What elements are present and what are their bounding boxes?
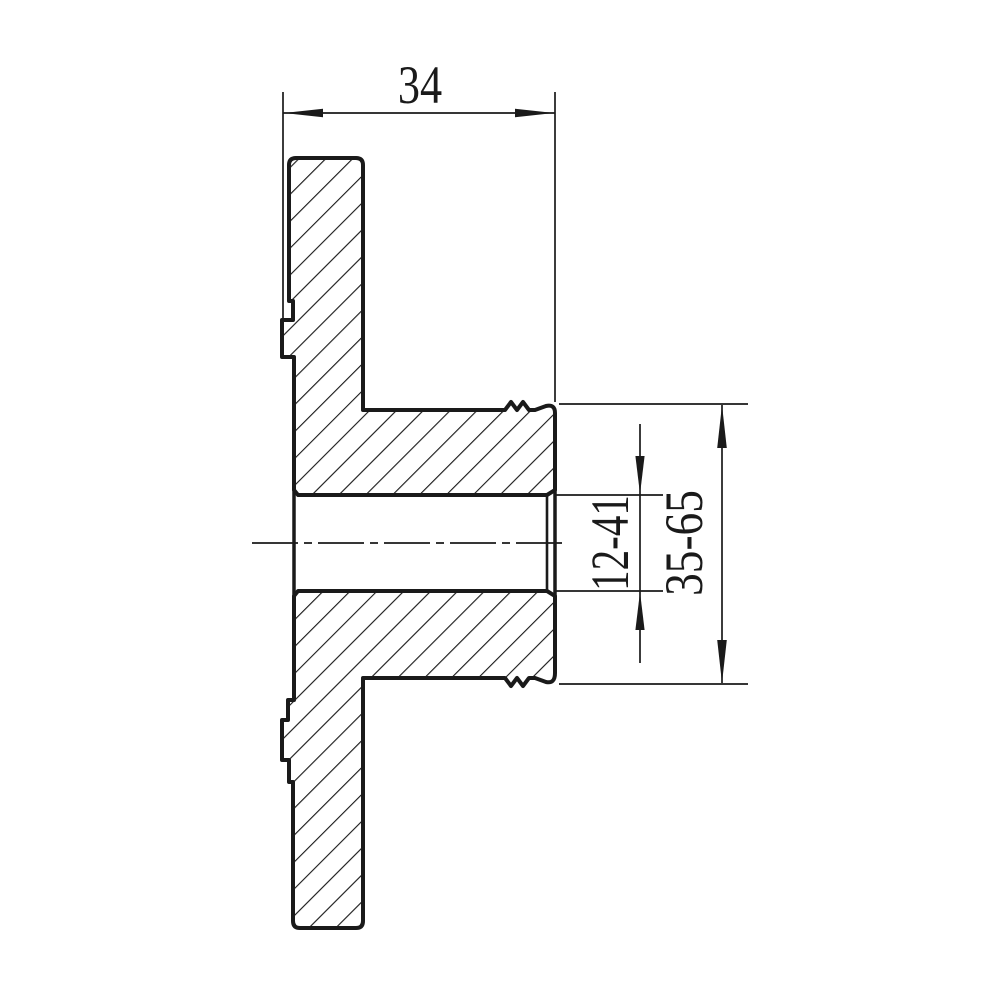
dim-label-bore-diameter: 12-41 bbox=[582, 478, 638, 607]
drawing-canvas: 34 12-41 35-65 bbox=[0, 0, 1000, 1000]
part-upper-section bbox=[282, 158, 555, 495]
arrowhead-left bbox=[284, 109, 323, 118]
arrowhead-down bbox=[717, 640, 727, 683]
dim-label-hub-diameter: 35-65 bbox=[656, 472, 712, 615]
dim-label-depth: 34 bbox=[371, 58, 469, 112]
section-view-svg bbox=[0, 0, 1000, 1000]
arrowhead-right bbox=[515, 109, 554, 118]
part-lower-section bbox=[282, 591, 555, 928]
upper-section-outline bbox=[282, 158, 555, 495]
arrowhead-up bbox=[717, 405, 727, 448]
lower-section-outline bbox=[282, 591, 555, 928]
